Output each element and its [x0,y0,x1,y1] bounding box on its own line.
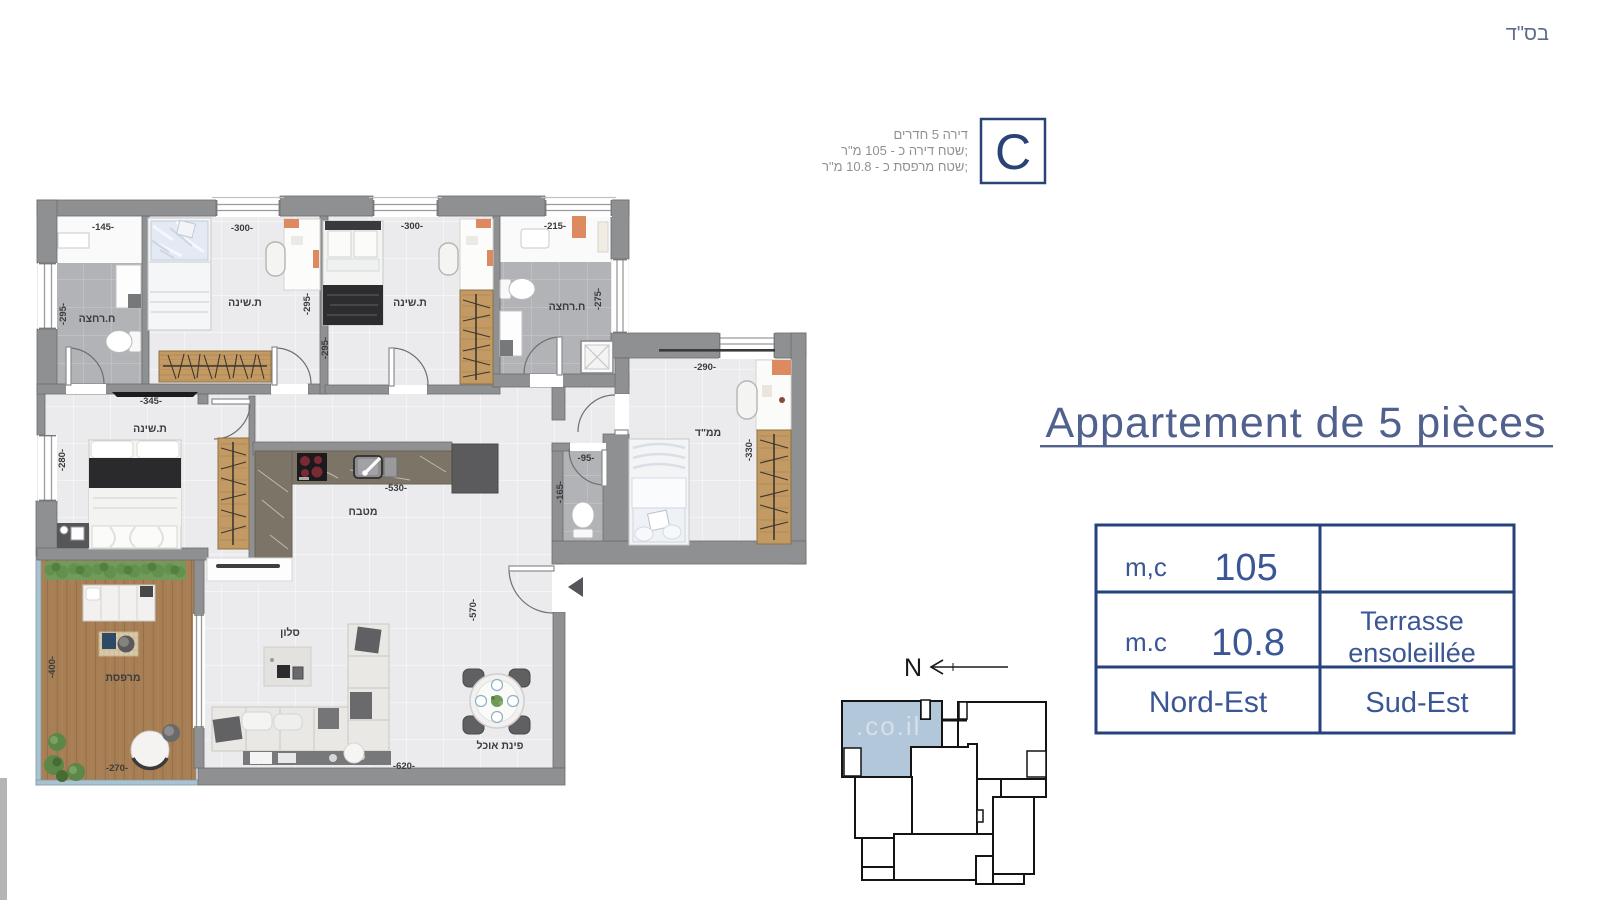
svg-text:Terrasse: Terrasse [1360,606,1464,636]
svg-text:-295-: -295- [320,337,331,359]
svg-text:m.c: m.c [1125,627,1167,657]
svg-text:Nord-Est: Nord-Est [1149,686,1268,719]
svg-text:105: 105 [1214,547,1277,589]
svg-text:ח.רחצה: ח.רחצה [549,301,586,313]
svg-text:-280-: -280- [57,449,68,471]
svg-text:-275-: -275- [593,288,604,310]
svg-text:-165-: -165- [555,481,566,503]
svg-text:m,c: m,c [1125,552,1167,582]
svg-text:מרפסת: מרפסת [106,672,141,684]
svg-text:שטח מרפסת כ - 10.8 מ"ר;: שטח מרפסת כ - 10.8 מ"ר; [822,159,968,174]
svg-text:שטח דירה כ - 105 מ"ר;: שטח דירה כ - 105 מ"ר; [841,143,968,158]
svg-text:ממ"ד: ממ"ד [695,427,721,439]
svg-text:-295-: -295- [58,303,69,325]
svg-text:ת.שינה: ת.שינה [393,297,427,309]
svg-text:פינת אוכל: פינת אוכל [477,740,524,752]
svg-text:-570-: -570- [468,599,479,621]
svg-text:מטבח: מטבח [349,506,378,518]
svg-text:Sud-Est: Sud-Est [1365,687,1468,719]
svg-text:Appartement de 5 pièces: Appartement de 5 pièces [1045,399,1546,447]
svg-text:-620-: -620- [393,761,415,772]
svg-text:דירה 5 חדרים: דירה 5 חדרים [894,127,969,142]
svg-text:-400-: -400- [47,656,58,678]
svg-text:-215-: -215- [544,221,566,232]
svg-text:ח.רחצה: ח.רחצה [79,313,116,325]
svg-text:-300-: -300- [401,221,423,232]
svg-text:-295-: -295- [302,293,313,315]
svg-text:-95-: -95- [578,453,595,464]
svg-text:-330-: -330- [744,439,755,461]
svg-text:.co.il: .co.il [856,711,921,741]
svg-text:-145-: -145- [92,222,114,233]
svg-text:בס"ד: בס"ד [1506,23,1549,45]
svg-text:ensoleillée: ensoleillée [1348,638,1476,668]
svg-text:N: N [904,654,922,682]
svg-text:ת.שינה: ת.שינה [228,297,262,309]
svg-text:ת.שינה: ת.שינה [133,423,167,435]
svg-text:-530-: -530- [385,483,407,494]
svg-text:-345-: -345- [140,396,162,407]
svg-text:סלון: סלון [280,627,300,639]
svg-text:-300-: -300- [231,223,253,234]
svg-text:-270-: -270- [106,763,128,774]
svg-text:-290-: -290- [694,362,716,373]
svg-text:C: C [995,124,1031,180]
svg-text:10.8: 10.8 [1211,622,1285,664]
